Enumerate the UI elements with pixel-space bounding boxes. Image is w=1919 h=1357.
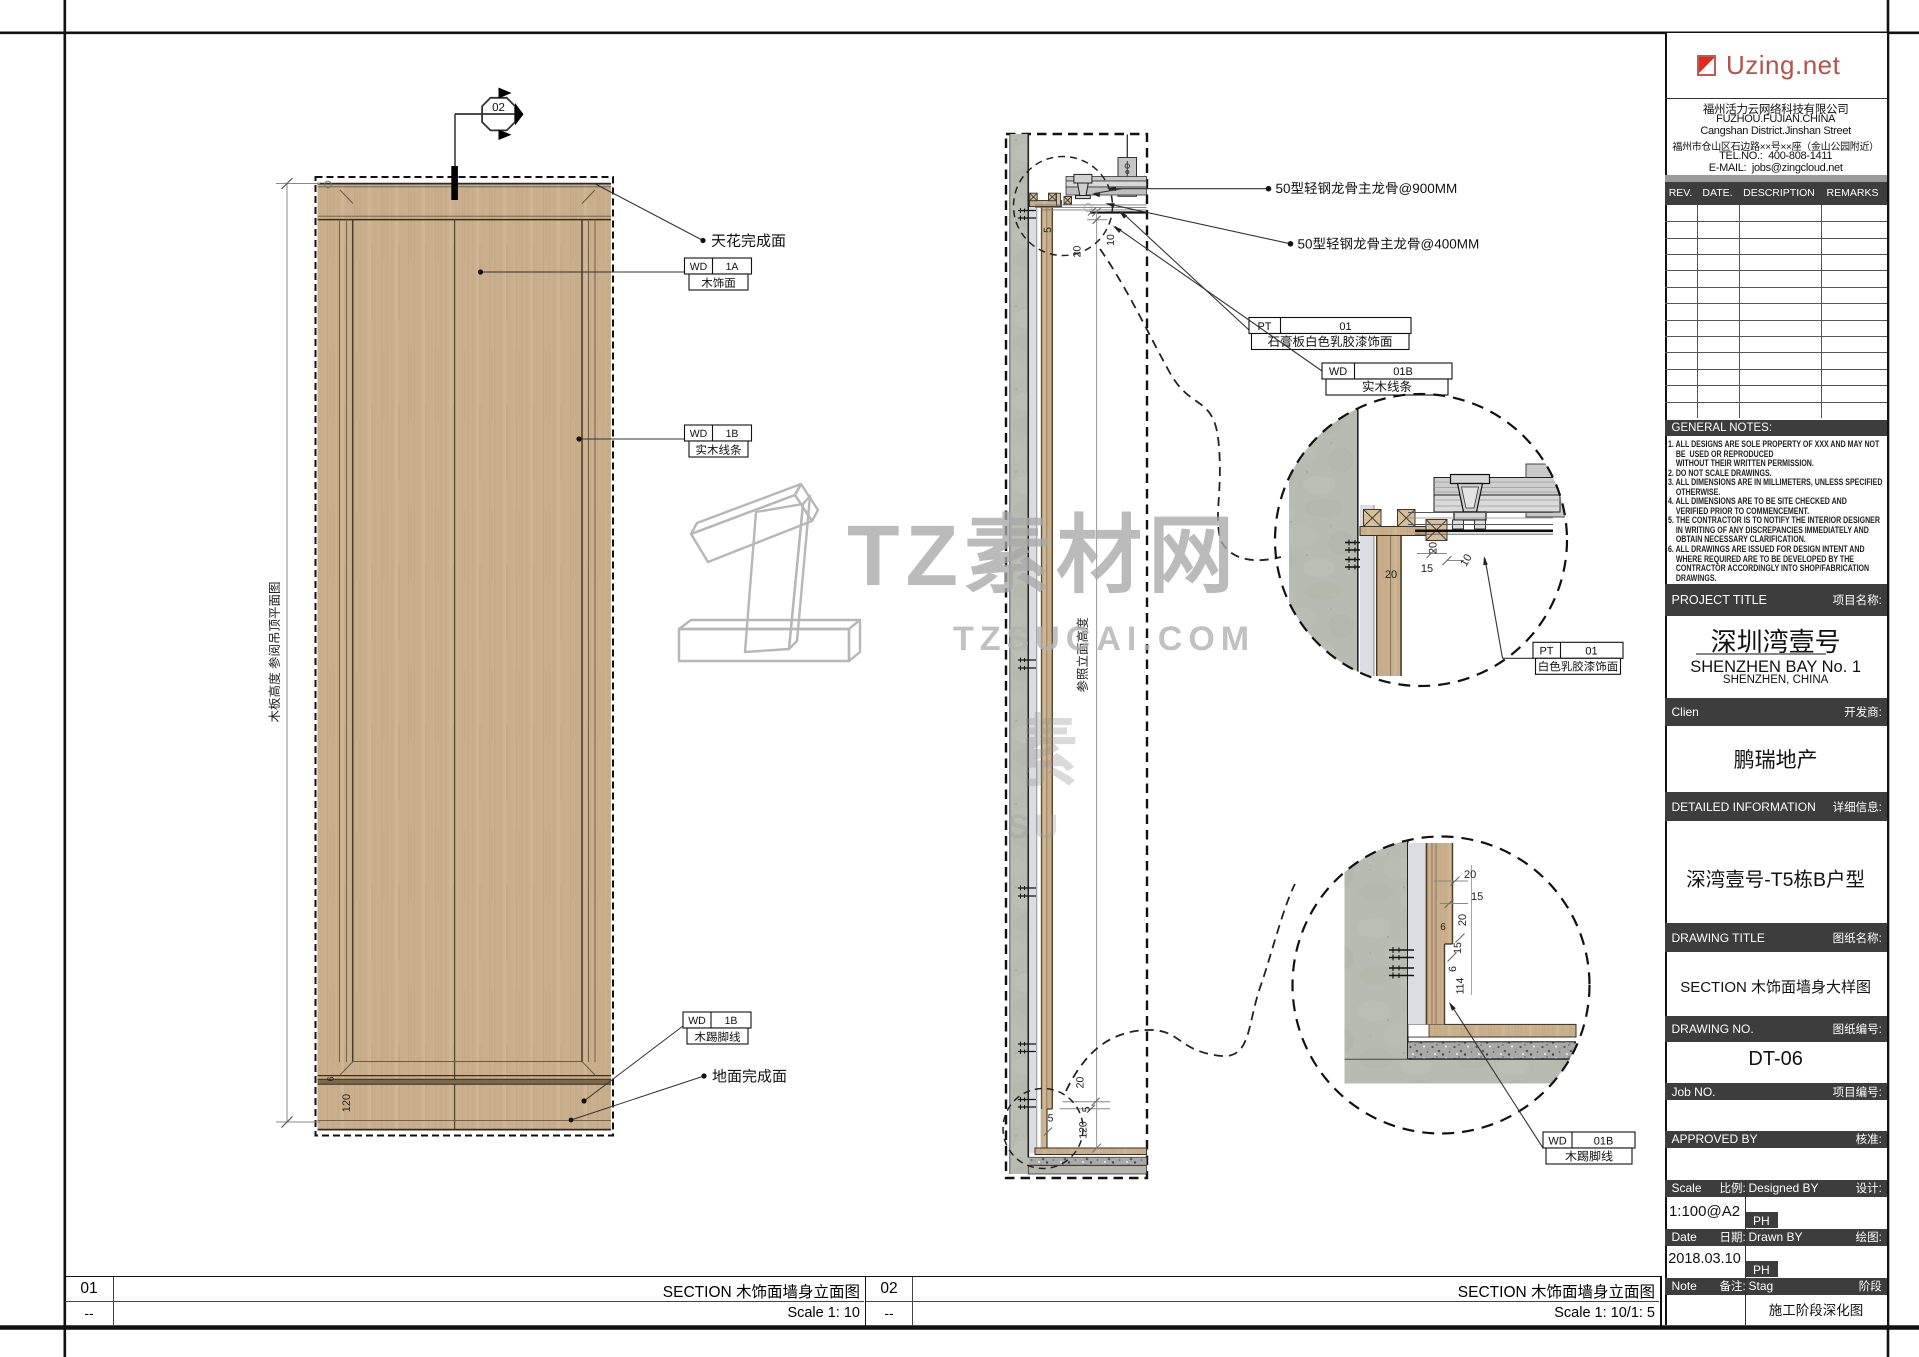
svg-text:实木线条: 实木线条 xyxy=(696,444,742,457)
svg-text:木饰面: 木饰面 xyxy=(701,277,736,290)
svg-text:10: 10 xyxy=(1458,552,1475,569)
svg-text:20: 20 xyxy=(1385,569,1397,581)
svg-text:50型轻钢龙骨主龙骨@900MM: 50型轻钢龙骨主龙骨@900MM xyxy=(1276,181,1458,196)
svg-text:20: 20 xyxy=(1464,869,1476,881)
svg-text:木板高度 参阅吊顶平面图: 木板高度 参阅吊顶平面图 xyxy=(268,582,282,723)
svg-text:PT: PT xyxy=(1539,646,1553,658)
svg-text:6: 6 xyxy=(326,1076,336,1081)
svg-text:6: 6 xyxy=(1440,922,1446,933)
svg-text:10: 10 xyxy=(1105,234,1117,246)
svg-text:5: 5 xyxy=(1081,1106,1093,1112)
svg-text:50型轻钢龙骨主龙骨@400MM: 50型轻钢龙骨主龙骨@400MM xyxy=(1298,236,1480,251)
svg-text:1B: 1B xyxy=(726,428,739,440)
svg-text:天花完成面: 天花完成面 xyxy=(711,233,786,250)
svg-text:5: 5 xyxy=(1042,227,1054,233)
svg-text:20: 20 xyxy=(1457,914,1469,926)
svg-text:1A: 1A xyxy=(726,261,739,273)
svg-text:WD: WD xyxy=(688,1015,706,1027)
svg-text:6: 6 xyxy=(1447,966,1459,972)
svg-text:01: 01 xyxy=(1585,646,1597,658)
svg-text:地面完成面: 地面完成面 xyxy=(712,1069,787,1086)
svg-text:15: 15 xyxy=(1471,891,1483,903)
svg-text:114: 114 xyxy=(1455,977,1467,994)
svg-text:20: 20 xyxy=(1072,246,1084,258)
svg-text:TZ素材网: TZ素材网 xyxy=(847,508,1240,604)
svg-text:SU: SU xyxy=(1007,808,1062,846)
svg-text:TZSUCAI.COM: TZSUCAI.COM xyxy=(953,620,1255,658)
svg-text:白色乳胶漆饰面: 白色乳胶漆饰面 xyxy=(1538,661,1619,674)
svg-text:木踢脚线: 木踢脚线 xyxy=(1565,1149,1613,1163)
svg-text:20: 20 xyxy=(1075,1077,1087,1089)
svg-text:5: 5 xyxy=(1048,1113,1054,1125)
svg-text:01B: 01B xyxy=(1393,366,1413,378)
svg-text:02: 02 xyxy=(492,102,505,114)
svg-text:WD: WD xyxy=(690,261,708,273)
svg-text:WD: WD xyxy=(1548,1135,1566,1147)
svg-text:木踢脚线: 木踢脚线 xyxy=(695,1031,741,1044)
svg-text:15: 15 xyxy=(1452,942,1464,954)
svg-text:01B: 01B xyxy=(1594,1135,1614,1147)
svg-text:实木线条: 实木线条 xyxy=(1362,380,1413,394)
svg-text:1B: 1B xyxy=(725,1015,738,1027)
svg-text:20: 20 xyxy=(1428,542,1440,554)
svg-text:01: 01 xyxy=(1339,321,1351,333)
svg-text:15: 15 xyxy=(1421,563,1433,575)
svg-text:120: 120 xyxy=(341,1094,353,1112)
svg-text:WD: WD xyxy=(690,428,708,440)
svg-text:WD: WD xyxy=(1329,366,1347,378)
